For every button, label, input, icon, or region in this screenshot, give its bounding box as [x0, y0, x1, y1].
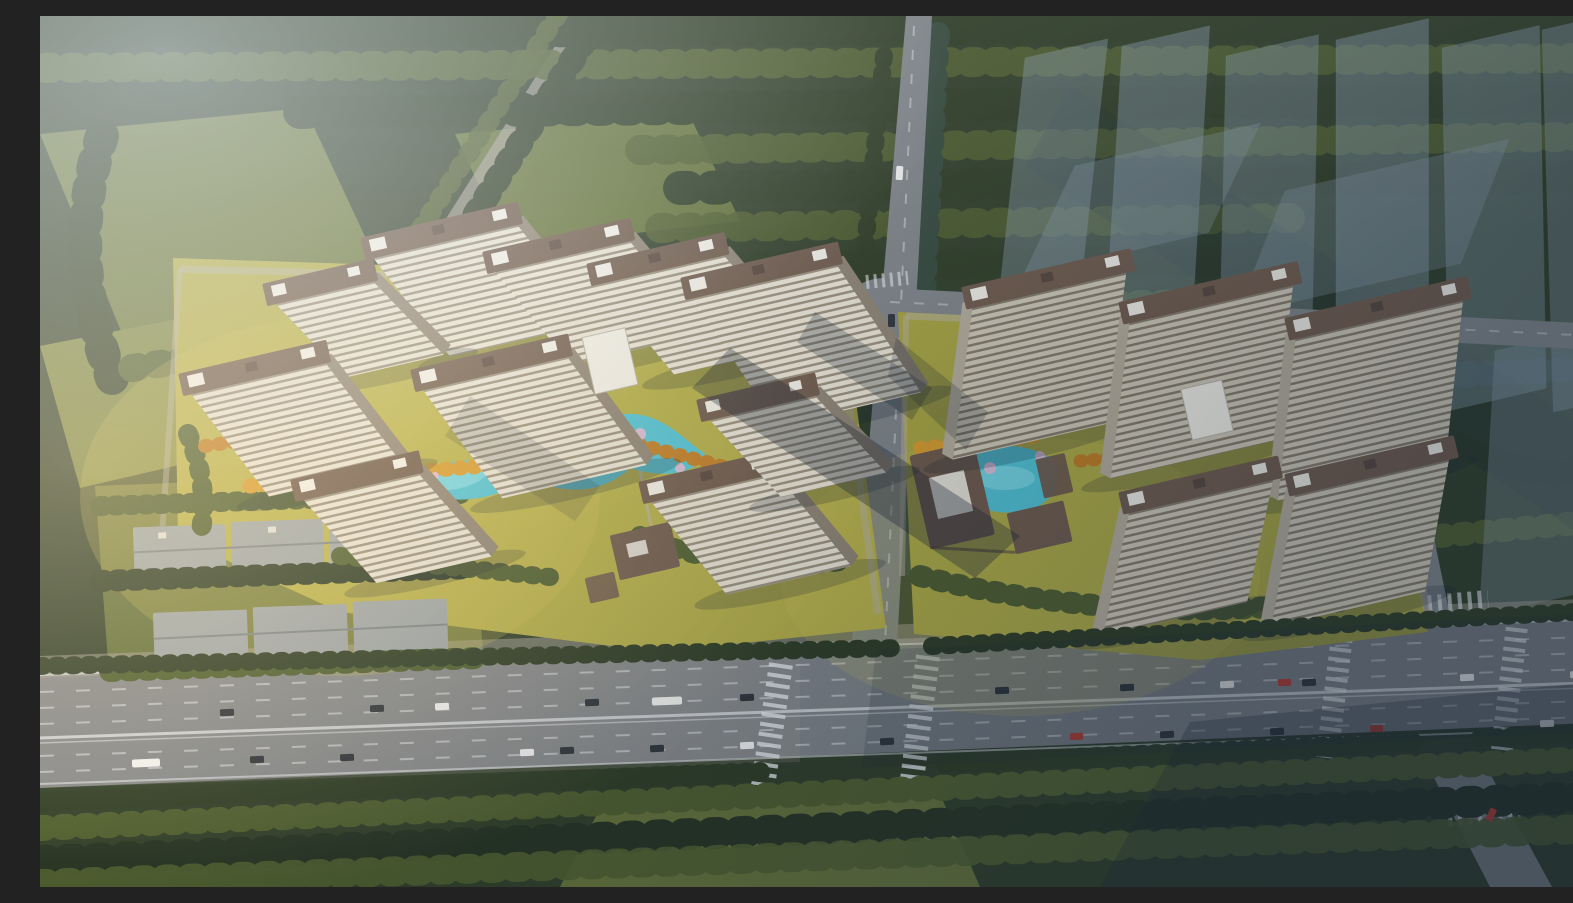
atmosphere-overlays	[40, 16, 1573, 887]
aerial-architectural-rendering	[40, 16, 1573, 887]
rendering-canvas	[40, 16, 1573, 887]
